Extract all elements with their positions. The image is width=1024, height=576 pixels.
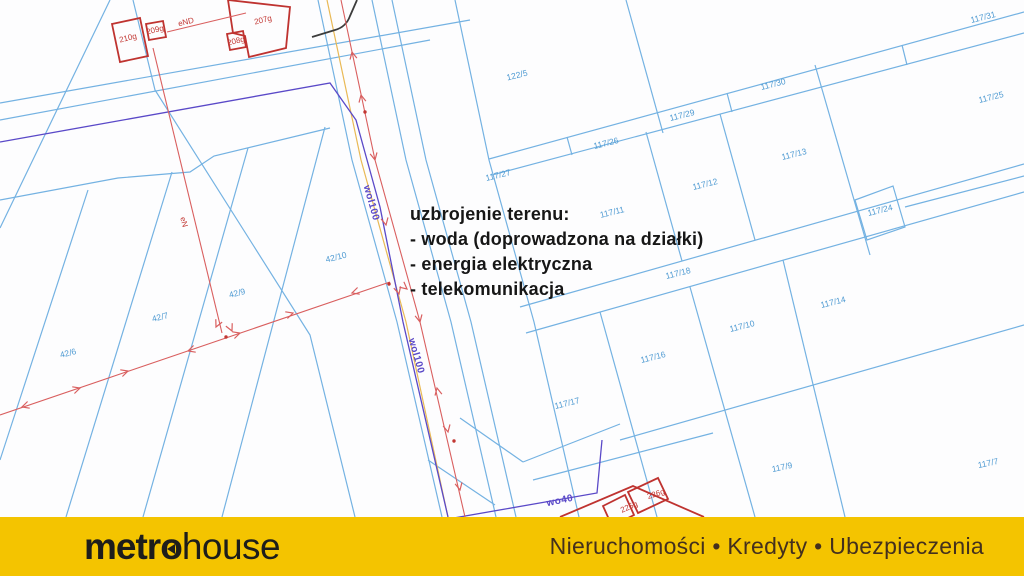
- measurement-lines: [0, 0, 465, 517]
- annotation-title: uzbrojenie terenu:: [410, 202, 703, 227]
- logo-text-metro: metr: [84, 526, 160, 567]
- annotation-item: - telekomunikacja: [410, 277, 703, 302]
- footer-banner: metrohouse Nieruchomości • Kredyty • Ube…: [0, 517, 1024, 576]
- metrohouse-logo: metrohouse: [84, 528, 280, 565]
- footer-tagline: Nieruchomości • Kredyty • Ubezpieczenia: [550, 533, 984, 560]
- screenshot: 122/5117/31117/30117/25117/29117/26117/1…: [0, 0, 1024, 576]
- utilities-annotation: uzbrojenie terenu: - woda (doprowadzona …: [410, 202, 703, 302]
- logo-house-arrow-icon: [167, 544, 175, 554]
- logo-text-house: house: [182, 526, 280, 567]
- logo-o: o: [160, 528, 182, 565]
- cadastral-map: 122/5117/31117/30117/25117/29117/26117/1…: [0, 0, 1024, 517]
- annotation-item: - energia elektryczna: [410, 252, 703, 277]
- annotation-item: - woda (doprowadzona na działki): [410, 227, 703, 252]
